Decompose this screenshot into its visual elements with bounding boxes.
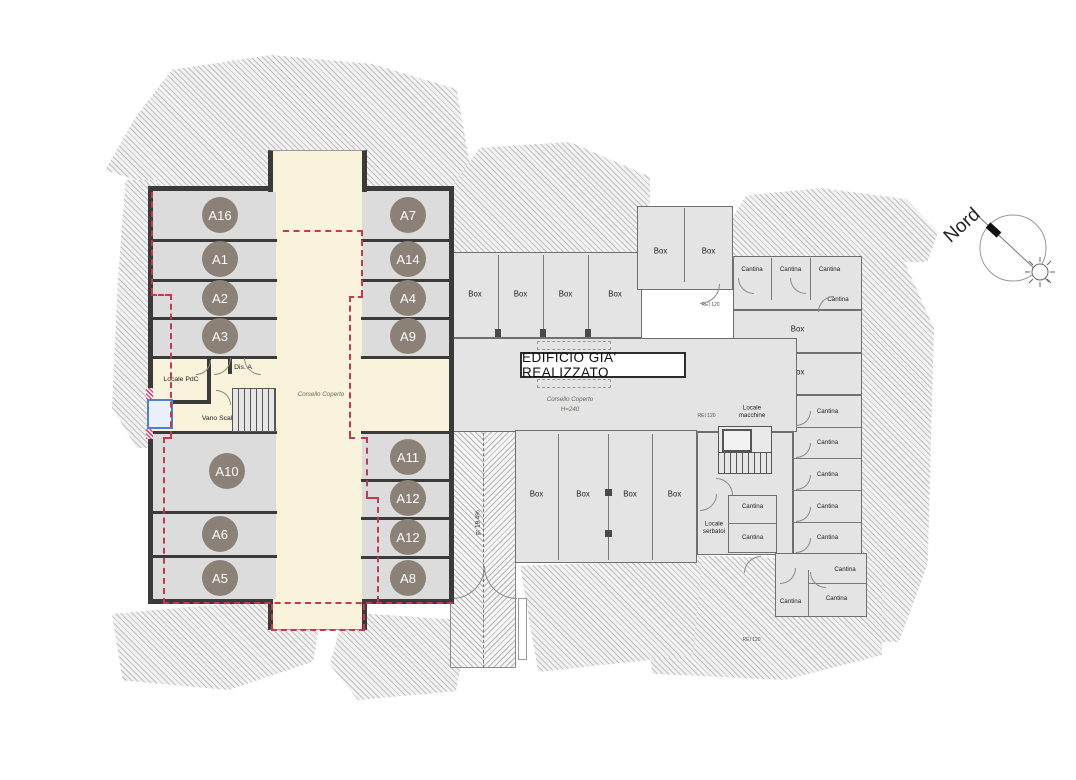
boundary-dashed-line xyxy=(377,497,379,602)
boundary-dashed-line xyxy=(361,230,363,296)
boundary-dashed-line xyxy=(271,604,273,630)
cantina-label: Cantina xyxy=(740,266,764,273)
box-label: Box xyxy=(657,490,692,499)
terrain-hatch xyxy=(520,560,702,672)
rei-label: REI 120 xyxy=(698,413,713,419)
cantina-label: Cantina xyxy=(806,534,849,541)
wall xyxy=(729,523,776,524)
pavement-mark xyxy=(537,379,611,388)
rei-label: REI 120 xyxy=(743,637,758,643)
wall-post xyxy=(495,329,501,337)
north-label: Nord xyxy=(940,204,985,247)
cantina-label: Cantina xyxy=(806,439,849,446)
wall-post xyxy=(605,489,612,496)
cantina-label: Cantina xyxy=(818,595,856,602)
box-label: Box xyxy=(747,325,848,334)
stall-badge: A3 xyxy=(202,318,238,354)
wall xyxy=(543,255,544,331)
boundary-dashed-line xyxy=(271,629,365,631)
stairs-b xyxy=(718,452,772,474)
boundary-dashed-line xyxy=(366,437,368,497)
wall xyxy=(794,490,861,491)
wall xyxy=(771,258,772,300)
box-label: Box xyxy=(457,290,493,299)
stall-badge: A14 xyxy=(390,241,426,277)
north-compass: Nord xyxy=(930,180,1070,295)
wall-post xyxy=(540,329,546,337)
boundary-dashed-line xyxy=(349,296,351,437)
wall xyxy=(808,570,809,616)
box-label: Box xyxy=(613,490,647,499)
stall-badge: A1 xyxy=(202,241,238,277)
stall-wall xyxy=(153,511,277,514)
stall-badge: A12 xyxy=(390,519,426,555)
wall xyxy=(810,258,811,300)
wall xyxy=(558,434,559,560)
wall xyxy=(794,522,861,523)
locale-macchine-label: Locale macchine xyxy=(733,404,770,418)
stall-badge: A5 xyxy=(202,560,238,596)
stall-badge: A10 xyxy=(209,453,245,489)
compass-north-mark-icon xyxy=(988,225,999,235)
cantina-label: Cantina xyxy=(778,266,802,273)
cantina-label: Cantina xyxy=(830,566,861,573)
wall xyxy=(588,255,589,331)
stall-wall xyxy=(153,555,277,558)
boundary-dashed-line xyxy=(163,437,165,604)
cantina-label: Cantina xyxy=(737,503,767,510)
ramp-right-half xyxy=(483,428,516,668)
stall-badge: A7 xyxy=(390,197,426,233)
corridor-a-label: Corsello Coperto xyxy=(296,391,346,398)
boundary-dashed-line xyxy=(151,294,171,296)
elevator-b xyxy=(722,429,752,452)
box-label: Box xyxy=(548,290,583,299)
stall-wall xyxy=(361,356,449,359)
boundary-dashed-line xyxy=(363,604,365,630)
box-label: Box xyxy=(503,290,538,299)
wall xyxy=(794,458,861,459)
terrain-hatch xyxy=(725,188,938,262)
pavement-mark xyxy=(537,341,611,350)
box-label: Box xyxy=(642,247,679,256)
ramp-left-half xyxy=(450,428,483,668)
sun-icon xyxy=(1025,257,1055,287)
fire-door-mark xyxy=(146,388,153,399)
wall xyxy=(652,434,653,560)
wall xyxy=(498,255,499,331)
cantina-label: Cantina xyxy=(737,534,767,541)
floor-plan: p: 19.4% Box Box Box Box Box Box Cantina… xyxy=(0,0,1076,780)
corsello-label: Corsello Coperto xyxy=(539,396,601,403)
boundary-dashed-line xyxy=(163,602,453,604)
wall-post xyxy=(585,329,591,337)
stall-badge: A9 xyxy=(390,318,426,354)
wall-post xyxy=(605,530,612,537)
wall xyxy=(794,427,861,428)
stall-badge: A11 xyxy=(390,439,426,475)
boundary-dashed-line xyxy=(283,230,363,232)
stall-badge: A2 xyxy=(202,280,238,316)
ramp-side-strip xyxy=(518,598,527,660)
stall-badge: A8 xyxy=(390,560,426,596)
wall xyxy=(684,208,685,282)
box-label: Box xyxy=(564,490,603,499)
corsello-height: H=240 xyxy=(539,406,601,413)
fire-door-mark xyxy=(146,429,153,439)
existing-building-banner: EDIFICIO GIA' REALIZZATO xyxy=(520,352,686,378)
locale-pdc-label: Locale PdC xyxy=(162,376,200,383)
boundary-dashed-line xyxy=(151,192,153,294)
cantina-label: Cantina xyxy=(773,598,807,605)
boundary-dashed-line xyxy=(170,294,172,437)
cantina-label: Cantina xyxy=(806,408,849,415)
box-label: Box xyxy=(594,290,636,299)
terrain-hatch xyxy=(450,142,650,258)
cantina-label: Cantina xyxy=(806,503,849,510)
ramp-slope-label: p: 19.4% xyxy=(475,498,482,548)
stairs-a xyxy=(232,388,276,432)
cantina-label: Cantina xyxy=(806,471,849,478)
box-label: Box xyxy=(520,490,554,499)
stall-badge: A16 xyxy=(202,197,238,233)
boundary-dashed-line xyxy=(349,296,363,298)
cantina-label: Cantina xyxy=(817,266,841,273)
stall-badge: A12 xyxy=(390,480,426,516)
wall xyxy=(608,434,609,560)
corridor-top-notch xyxy=(268,150,367,192)
stall-wall xyxy=(361,556,449,559)
box-label: Box xyxy=(689,247,727,256)
locale-serbatoi-label: Locale serbatoi xyxy=(698,520,730,534)
stall-wall xyxy=(361,431,449,434)
stall-badge: A4 xyxy=(390,280,426,316)
stall-badge: A6 xyxy=(202,516,238,552)
boundary-dashed-line xyxy=(349,437,367,439)
